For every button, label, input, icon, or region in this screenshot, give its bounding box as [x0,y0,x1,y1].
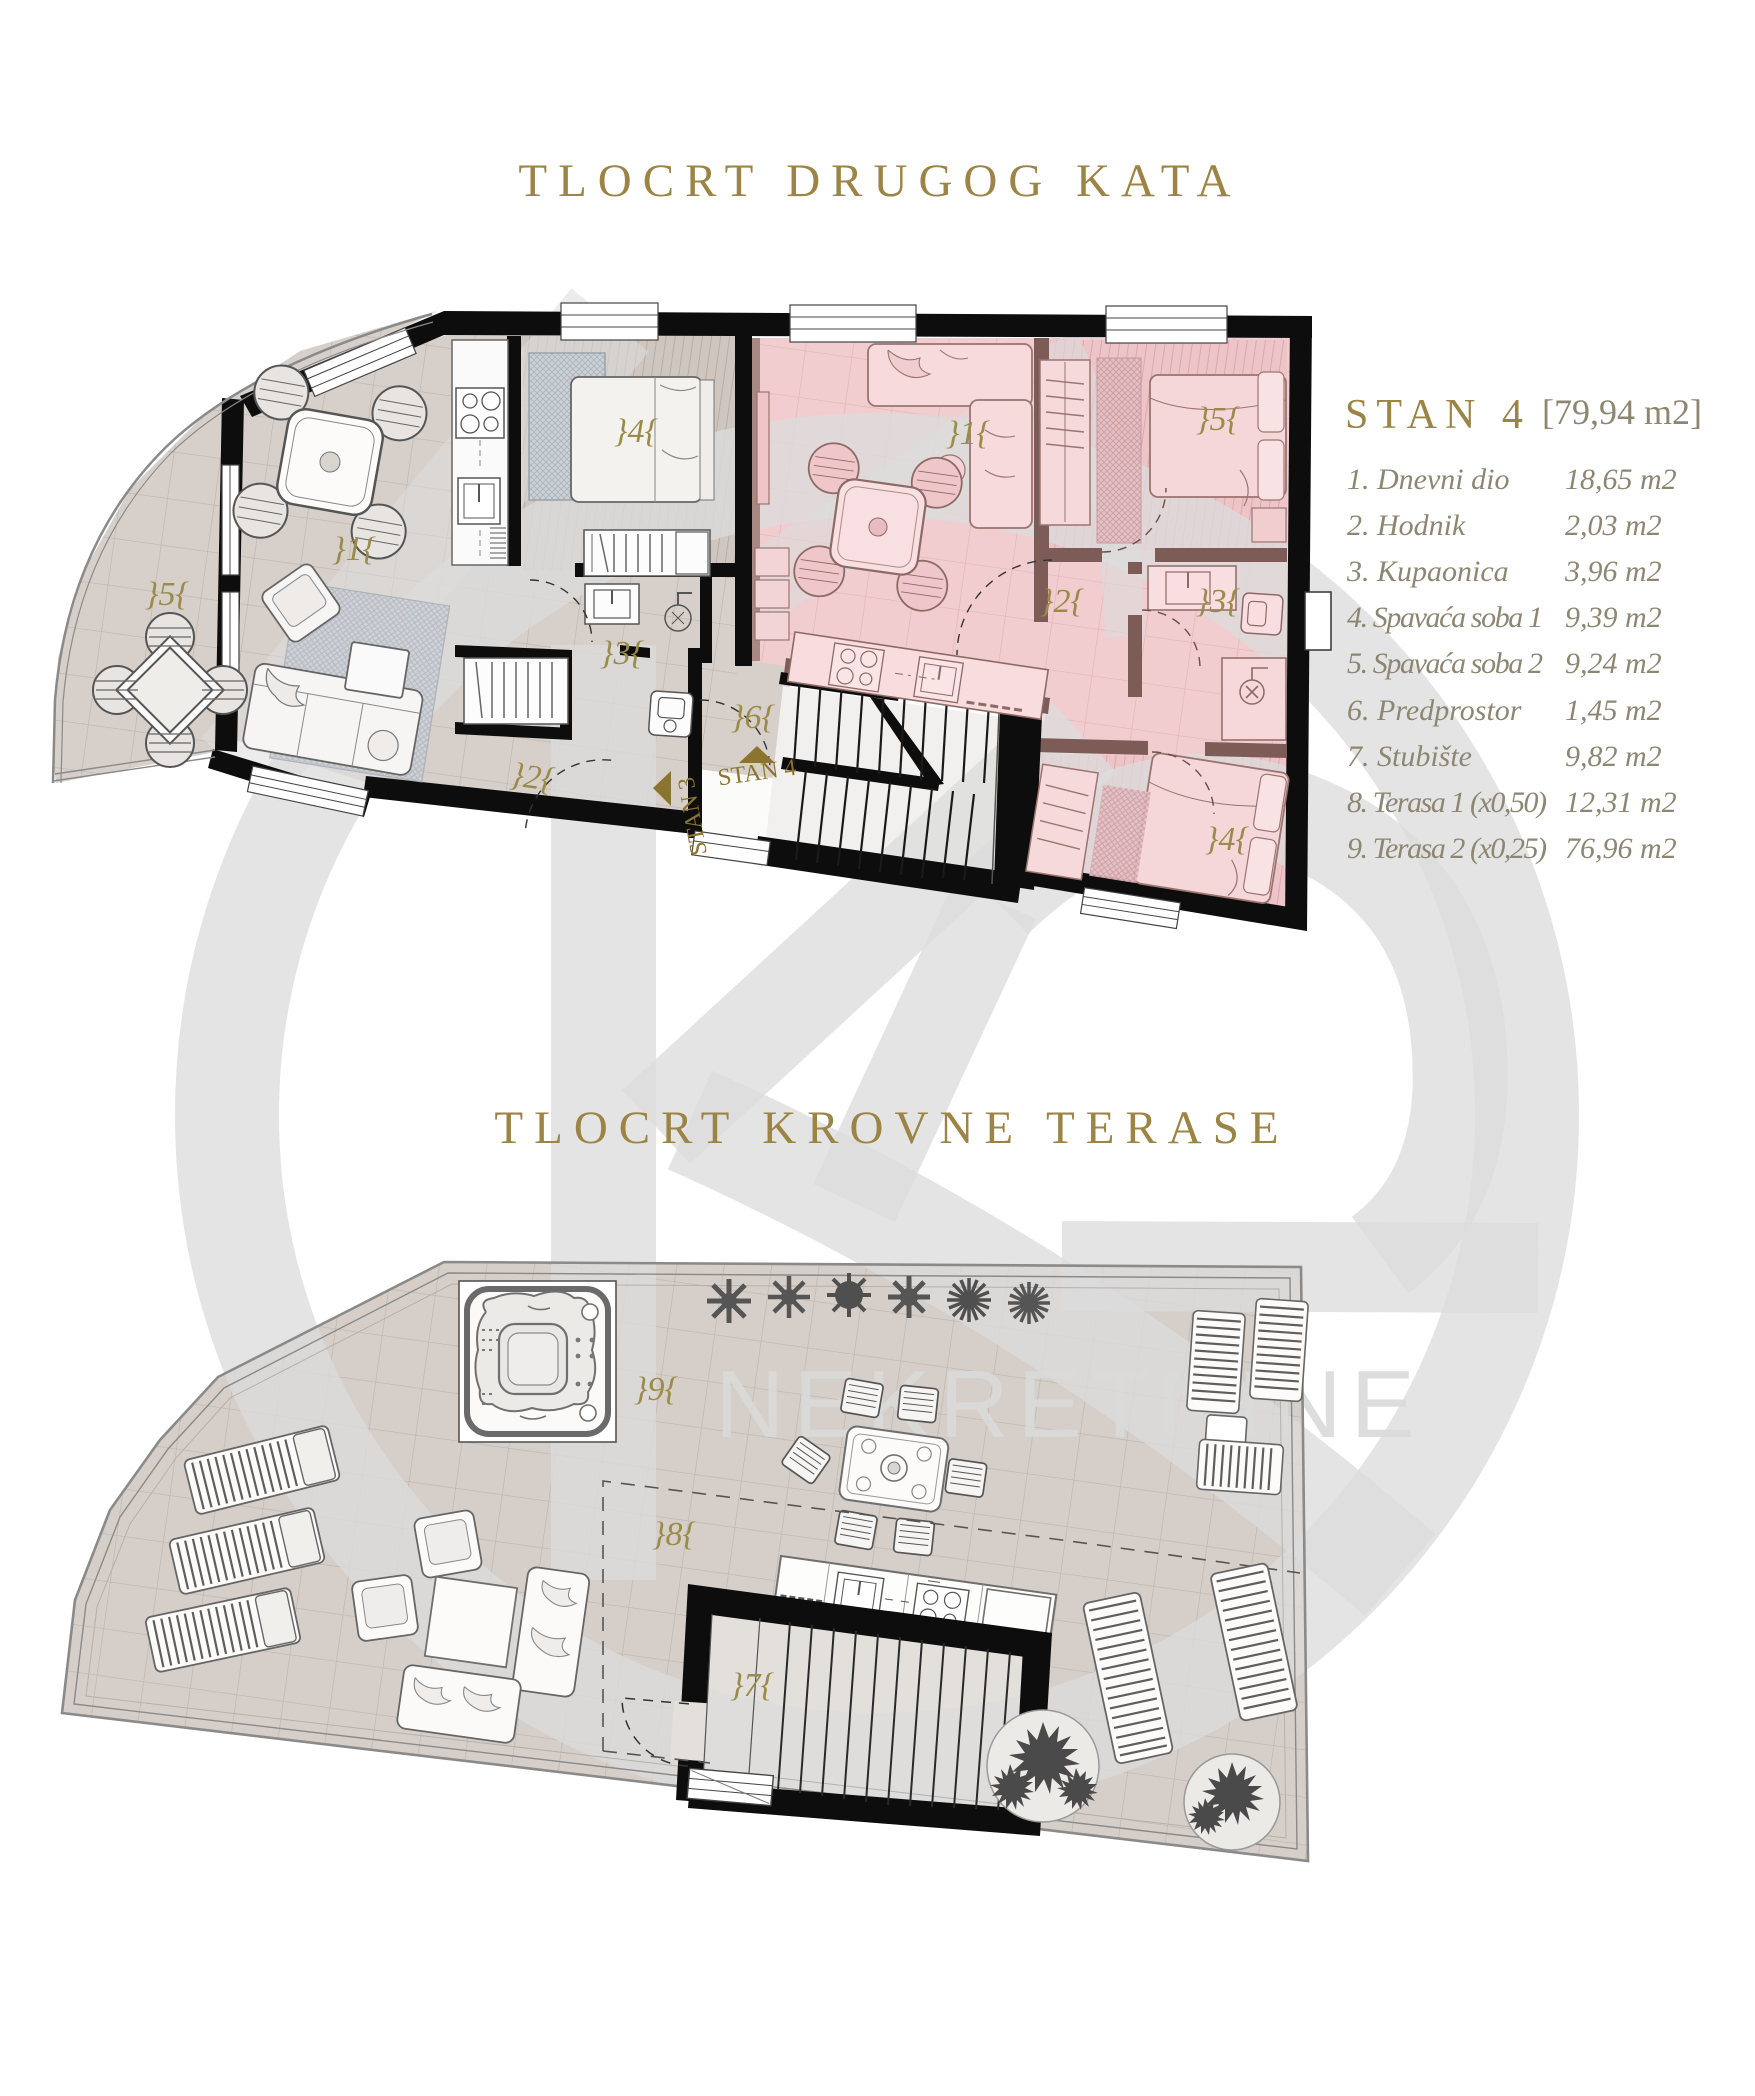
svg-text:4. Spavaća soba 1: 4. Spavaća soba 1 [1347,601,1543,634]
svg-text:9,39 m2: 9,39 m2 [1565,601,1662,634]
svg-text:}4{: }4{ [1205,821,1250,858]
svg-text:2. Hodnik: 2. Hodnik [1347,509,1466,542]
svg-text:2,03 m2: 2,03 m2 [1565,509,1662,542]
svg-text:3. Kupaonica: 3. Kupaonica [1346,555,1509,588]
svg-text:18,65 m2: 18,65 m2 [1565,463,1677,496]
svg-text:12,31 m2: 12,31 m2 [1565,786,1677,819]
svg-text:7. Stubište: 7. Stubište [1347,740,1472,773]
svg-text:TLOCRT DRUGOG KATA: TLOCRT DRUGOG KATA [518,155,1241,207]
svg-text:6. Predprostor: 6. Predprostor [1347,694,1522,727]
svg-text:8. Terasa 1 (x0,50): 8. Terasa 1 (x0,50) [1347,786,1547,819]
svg-text:STAN 4: STAN 4 [1345,392,1531,438]
svg-text:3,96 m2: 3,96 m2 [1564,555,1662,588]
svg-text:9,24 m2: 9,24 m2 [1565,647,1662,680]
svg-text:76,96 m2: 76,96 m2 [1565,832,1677,865]
svg-text:}3{: }3{ [1196,583,1241,620]
svg-text:1. Dnevni dio: 1. Dnevni dio [1347,463,1509,496]
svg-text:}5{: }5{ [1196,401,1241,438]
svg-text:}8{: }8{ [652,1516,697,1553]
svg-text:}1{: }1{ [946,415,991,452]
svg-text:9. Terasa 2 (x0,25): 9. Terasa 2 (x0,25) [1347,832,1547,865]
svg-text:}2{: }2{ [508,756,557,799]
svg-text:}9{: }9{ [634,1371,679,1408]
svg-text:}1{: }1{ [332,531,377,568]
svg-text:}7{: }7{ [730,1667,775,1704]
svg-text:5. Spavaća soba 2: 5. Spavaća soba 2 [1347,647,1543,680]
svg-text:}3{: }3{ [600,635,645,672]
svg-text:9,82 m2: 9,82 m2 [1565,740,1662,773]
svg-text:}4{: }4{ [614,413,659,450]
svg-text:NEKRETNINE: NEKRETNINE [715,1351,1424,1458]
svg-text:TLOCRT KROVNE TERASE: TLOCRT KROVNE TERASE [494,1102,1289,1154]
svg-text:[79,94 m2]: [79,94 m2] [1542,392,1702,432]
svg-text:}2{: }2{ [1040,583,1085,620]
svg-text:}5{: }5{ [145,576,190,613]
svg-text:1,45 m2: 1,45 m2 [1565,694,1662,727]
svg-text:}6{: }6{ [731,699,776,736]
